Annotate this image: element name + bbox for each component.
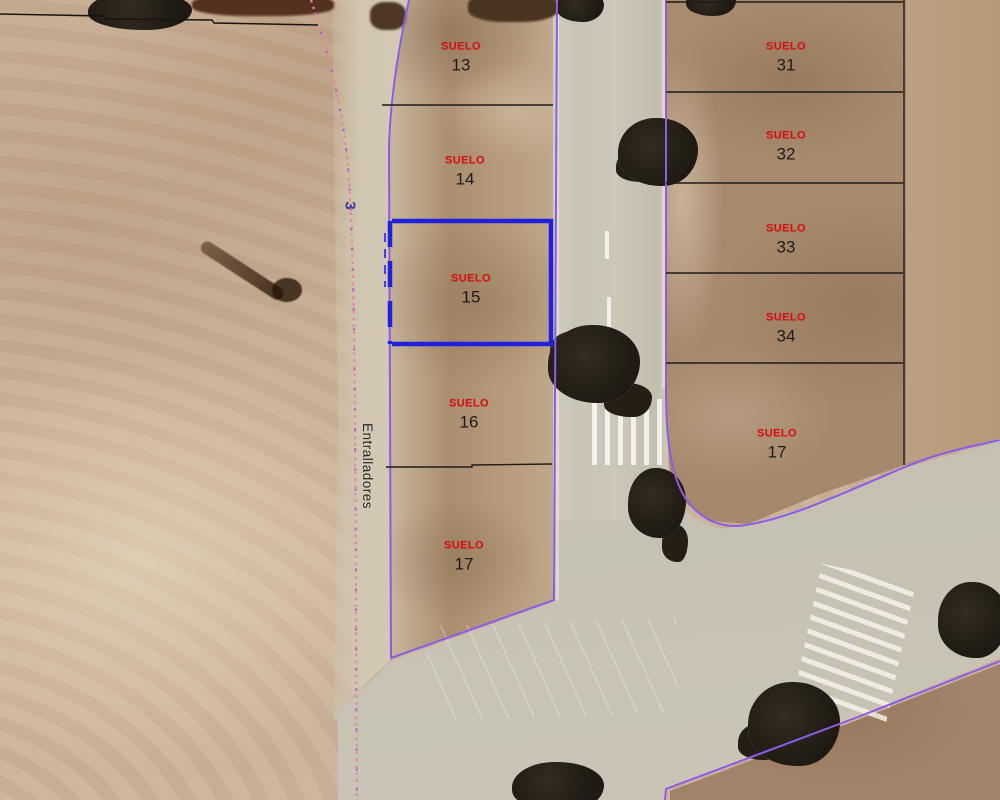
scrub-row-top <box>192 0 334 16</box>
lane-marking <box>607 297 611 327</box>
parcel-tag: SUELO <box>766 41 806 53</box>
parcel-tag: SUELO <box>766 312 806 324</box>
tree-top-left <box>88 0 192 30</box>
parcel-tag: SUELO <box>757 428 797 440</box>
parcel-tag: SUELO <box>766 130 806 142</box>
scrub-top-parcel13 <box>468 0 558 22</box>
field-shadow-blob <box>272 278 302 302</box>
tree-crosswalk-upper <box>548 325 640 403</box>
parcel-number: 33 <box>777 238 796 258</box>
parcel-number: 32 <box>777 145 796 165</box>
scrub-top-street <box>370 2 406 30</box>
parking-stall-stripes <box>426 618 679 722</box>
parcel-label-16[interactable]: SUELO 16 <box>449 398 489 433</box>
tree-crosswalk-lower <box>628 468 686 538</box>
tree-bottom-right <box>748 682 840 766</box>
parcel-number: 34 <box>777 327 796 347</box>
parcel-tag: SUELO <box>451 273 491 285</box>
parcel-label-33[interactable]: SUELO 33 <box>766 223 806 258</box>
parcel-number: 17 <box>768 443 787 463</box>
tree-right-edge <box>938 582 1000 658</box>
parcel-number: 15 <box>462 288 481 308</box>
parcel-tag: SUELO <box>445 155 485 167</box>
road-number-label: 3 <box>342 201 359 209</box>
parcel-label-34[interactable]: SUELO 34 <box>766 312 806 347</box>
parcel-tag: SUELO <box>449 398 489 410</box>
parcel-number: 14 <box>456 170 475 190</box>
map-canvas[interactable]: SUELO 13 SUELO 14 SUELO 15 SUELO 16 SUEL… <box>0 0 1000 800</box>
parcel-tag: SUELO <box>441 41 481 53</box>
parcel-label-31[interactable]: SUELO 31 <box>766 41 806 76</box>
lane-marking <box>605 231 609 259</box>
parcel-number: 16 <box>460 413 479 433</box>
parcel-tag: SUELO <box>766 223 806 235</box>
parcel-label-17-right[interactable]: SUELO 17 <box>757 428 797 463</box>
parcel-label-17-left[interactable]: SUELO 17 <box>444 540 484 575</box>
parcel-label-13[interactable]: SUELO 13 <box>441 41 481 76</box>
parcel-label-15-selected[interactable]: SUELO 15 <box>451 273 491 308</box>
parcel-label-14[interactable]: SUELO 14 <box>445 155 485 190</box>
parcel-number: 17 <box>455 555 474 575</box>
curb-right <box>662 0 665 388</box>
crosswalk-central <box>592 399 666 465</box>
tree-road-middle <box>618 118 698 186</box>
street-name-label: Entralladores <box>360 423 375 563</box>
parcel-number: 13 <box>452 56 471 76</box>
curb-left <box>556 0 559 600</box>
parcel-number: 31 <box>777 56 796 76</box>
parcel-label-32[interactable]: SUELO 32 <box>766 130 806 165</box>
parcel-tag: SUELO <box>444 540 484 552</box>
